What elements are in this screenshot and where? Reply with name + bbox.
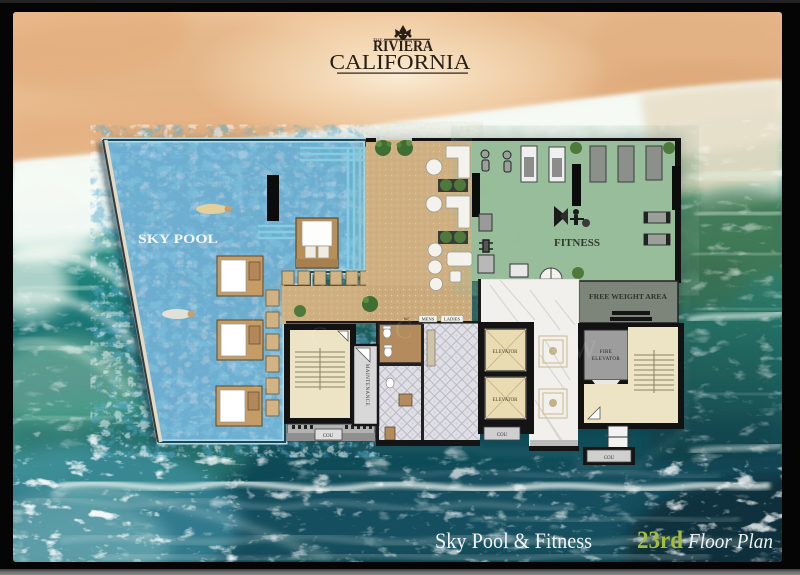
svg-text:Sky Pool & Fitness: Sky Pool & Fitness — [435, 528, 592, 553]
svg-text:MAINTENANCE: MAINTENANCE — [364, 364, 369, 406]
svg-text:FITNESS: FITNESS — [554, 238, 600, 249]
svg-text:23rd: 23rd — [637, 527, 683, 554]
svg-text:COU: COU — [604, 456, 615, 461]
svg-text:FREE WEIGHT AREA: FREE WEIGHT AREA — [589, 292, 668, 301]
svg-text:C: C — [310, 322, 327, 351]
svg-text:A: A — [250, 299, 269, 328]
svg-text:SKY POOL: SKY POOL — [138, 231, 218, 246]
svg-text:COU: COU — [323, 434, 334, 439]
svg-text:W: W — [572, 335, 597, 364]
svg-text:V: V — [512, 299, 531, 328]
svg-text:ELEVATOR: ELEVATOR — [493, 349, 518, 355]
svg-text:H: H — [252, 365, 271, 394]
svg-text:A: A — [545, 343, 564, 372]
svg-text:CALIFORNIA: CALIFORNIA — [330, 50, 472, 74]
svg-text:COU: COU — [497, 433, 508, 438]
svg-text:C: C — [395, 315, 412, 344]
svg-text:Floor Plan: Floor Plan — [687, 529, 773, 553]
svg-text:C: C — [185, 327, 202, 356]
svg-text:MENS: MENS — [422, 317, 435, 322]
svg-text:ELEVATOR: ELEVATOR — [493, 397, 518, 403]
svg-text:FIRE: FIRE — [600, 350, 612, 355]
svg-text:LADIES: LADIES — [444, 317, 460, 322]
